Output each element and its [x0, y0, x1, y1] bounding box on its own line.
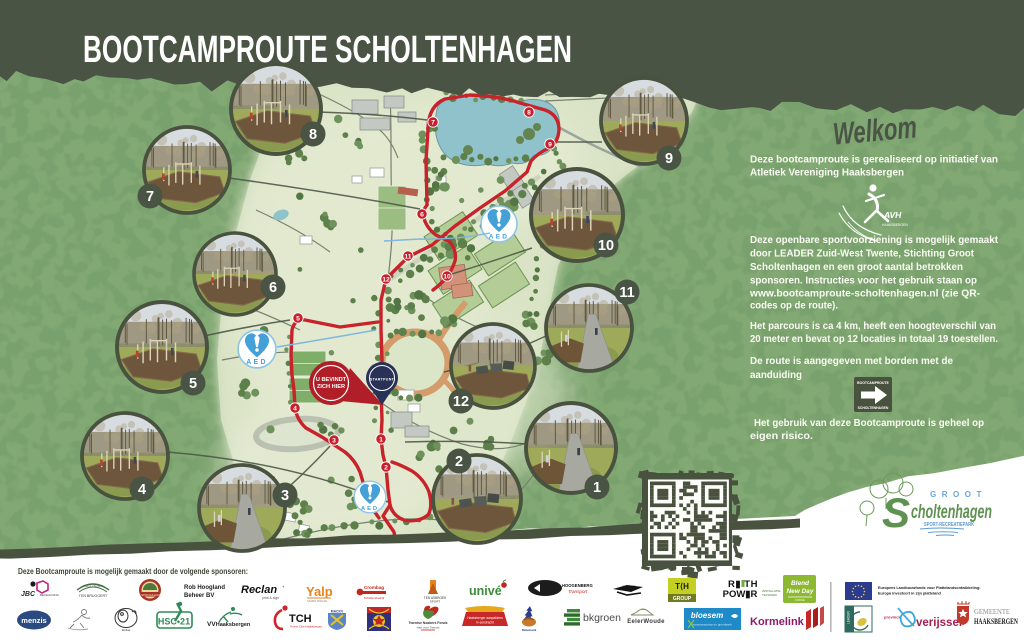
svg-text:SCHOLTENHAGEN: SCHOLTENHAGEN — [858, 406, 889, 410]
svg-text:JBC: JBC — [21, 591, 36, 598]
svg-text:SAMEN SPELEN: SAMEN SPELEN — [307, 599, 327, 603]
svg-text:De route is aangegeven met bor: De route is aangegeven met borden met de — [750, 356, 954, 367]
svg-text:Haaksbergen: Haaksbergen — [216, 622, 251, 628]
svg-text:11: 11 — [404, 253, 411, 260]
svg-text:verijssel: verijssel — [916, 617, 962, 629]
svg-text:6: 6 — [269, 280, 277, 296]
svg-text:8: 8 — [309, 127, 317, 143]
svg-text:10: 10 — [598, 238, 614, 254]
svg-text:TCH: TCH — [289, 613, 312, 625]
svg-text:Deze Bootcamproute is mogelijk: Deze Bootcamproute is mogelijk gemaakt d… — [18, 567, 248, 576]
svg-text:Hart voor Twente: Hart voor Twente — [417, 626, 440, 630]
svg-text:Hout | Bouw: Hout | Bouw — [85, 584, 101, 588]
svg-text:AED: AED — [361, 506, 379, 512]
svg-text:Schildersbedrijf: Schildersbedrijf — [364, 596, 385, 600]
svg-text:Europa investeert in zijn plat: Europa investeert in zijn platteland — [878, 592, 942, 596]
svg-text:GROUP: GROUP — [673, 596, 692, 602]
svg-text:AED: AED — [489, 234, 510, 241]
svg-text:choltenhagen: choltenhagen — [911, 502, 992, 523]
svg-text:8: 8 — [527, 109, 531, 116]
svg-text:GEMEENTE: GEMEENTE — [974, 608, 1010, 616]
svg-text:11: 11 — [619, 285, 634, 301]
svg-text:HAAKSBERGEN: HAAKSBERGEN — [882, 223, 908, 227]
svg-text:6: 6 — [420, 211, 424, 218]
svg-text:LEADER: LEADER — [847, 611, 851, 624]
svg-text:hoveniersgroep en grondwerk: hoveniersgroep en grondwerk — [692, 623, 732, 627]
svg-text:Yalp: Yalp — [306, 584, 333, 599]
svg-text:TECHNIEK: TECHNIEK — [762, 593, 777, 597]
svg-text:Wolkat: Wolkat — [122, 628, 131, 632]
svg-text:menzis: menzis — [21, 616, 46, 625]
svg-text:KOFFIE: KOFFIE — [795, 598, 805, 602]
svg-text:1: 1 — [593, 480, 601, 496]
svg-text:Welkom: Welkom — [832, 109, 919, 151]
svg-text:Rob Hoogland: Rob Hoogland — [184, 585, 225, 591]
svg-text:BOOTCAMPROUTE: BOOTCAMPROUTE — [857, 381, 889, 385]
svg-text:STARTPUNT: STARTPUNT — [370, 378, 395, 382]
svg-text:AED: AED — [246, 359, 268, 366]
svg-text:4: 4 — [293, 405, 297, 412]
svg-text:9: 9 — [665, 151, 673, 167]
svg-text:U BEVINDT: U BEVINDT — [316, 377, 347, 383]
svg-text:Transport: Transport — [568, 589, 588, 594]
svg-text:HOOGENBERG: HOOGENBERG — [562, 583, 593, 588]
svg-text:sponsoren. Instructies voor he: sponsoren. Instructies voor het gebruik … — [750, 276, 977, 287]
svg-text:S: S — [882, 489, 910, 536]
svg-text:MACKV: MACKV — [331, 609, 344, 613]
svg-text:POW▮R: POW▮R — [723, 589, 758, 600]
svg-text:Het parcours is ca 4 km, heeft: Het parcours is ca 4 km, heeft een hoogt… — [750, 321, 996, 332]
svg-text:Blend: Blend — [791, 580, 810, 587]
svg-text:SPORT: SPORT — [430, 600, 440, 604]
svg-text:BOOTCAMPROUTE SCHOLTENHAGEN: BOOTCAMPROUTE SCHOLTENHAGEN — [83, 29, 572, 71]
svg-text:Europees Landbouwfonds voor Pl: Europees Landbouwfonds voor Plattelandso… — [878, 586, 981, 590]
svg-text:aanduiding: aanduiding — [750, 370, 802, 381]
svg-text:9: 9 — [548, 141, 552, 148]
svg-text:codes op de route).: codes op de route). — [750, 301, 838, 312]
svg-text:bloesem: bloesem — [691, 611, 723, 620]
svg-text:Tennis Club Haaksbergen: Tennis Club Haaksbergen — [290, 625, 322, 629]
svg-text:HSC•21: HSC•21 — [158, 617, 190, 627]
svg-text:Atletiek Vereniging Haaksberge: Atletiek Vereniging Haaksbergen — [750, 168, 904, 179]
svg-text:TEN BRUGGERT: TEN BRUGGERT — [79, 594, 108, 598]
svg-text:Kormelink: Kormelink — [750, 616, 805, 628]
svg-text:New Day: New Day — [786, 588, 813, 595]
svg-text:20 meter en bevat op 12 locati: 20 meter en bevat op 12 locaties in tota… — [750, 334, 998, 345]
svg-text:Beheer BV: Beheer BV — [184, 593, 214, 599]
svg-text:Rabobank: Rabobank — [522, 628, 537, 632]
svg-text:eigen risico.: eigen risico. — [750, 431, 813, 442]
svg-text:Deze openbare sportvoorziening: Deze openbare sportvoorziening is mogeli… — [750, 235, 999, 246]
svg-text:Scholtenhagen en een groot aan: Scholtenhagen en een groot aantal betrok… — [750, 262, 963, 273]
svg-text:bkgroen: bkgroen — [583, 612, 621, 624]
svg-text:ZICH HIER: ZICH HIER — [317, 384, 345, 390]
svg-text:7: 7 — [431, 119, 435, 126]
svg-text:EelerWoude: EelerWoude — [627, 619, 665, 625]
svg-text:GROOT: GROOT — [930, 490, 987, 499]
svg-text:2: 2 — [384, 464, 388, 471]
svg-text:univé: univé — [469, 584, 502, 598]
svg-text:in eendracht: in eendracht — [476, 621, 494, 625]
svg-text:HAAKSBERGEN: HAAKSBERGEN — [974, 617, 1018, 626]
svg-text:3: 3 — [332, 437, 336, 444]
svg-text:AVH: AVH — [883, 210, 902, 220]
svg-text:Reclan: Reclan — [241, 584, 277, 596]
svg-text:3: 3 — [281, 488, 289, 504]
svg-text:BEVEILIGING: BEVEILIGING — [40, 593, 60, 597]
svg-text:print & sign: print & sign — [262, 596, 279, 600]
svg-text:10: 10 — [443, 273, 451, 280]
svg-text:'t SPROAKHUIS: 't SPROAKHUIS — [139, 593, 161, 597]
svg-text:makelaars: makelaars — [623, 584, 637, 588]
svg-text:www.bootcamproute-scholtenhage: www.bootcamproute-scholtenhagen.nl (zie … — [749, 289, 980, 300]
svg-text:2: 2 — [455, 454, 463, 470]
svg-text:Haaksberger aanpakkers: Haaksberger aanpakkers — [467, 616, 503, 620]
svg-text:door LEADER Zuid-West Twente,: door LEADER Zuid-West Twente, Stichting … — [750, 249, 975, 260]
svg-text:SPORT-RECREATIEPARK: SPORT-RECREATIEPARK — [924, 522, 974, 528]
svg-text:4: 4 — [138, 482, 146, 498]
svg-text:12: 12 — [453, 394, 469, 410]
svg-text:Deze bootcamproute is gerealis: Deze bootcamproute is gerealiseerd op in… — [750, 155, 998, 166]
svg-text:T⟨H: T⟨H — [675, 582, 689, 591]
svg-text:5: 5 — [296, 315, 300, 322]
svg-text:Crombag: Crombag — [364, 585, 384, 590]
svg-text:1: 1 — [379, 436, 383, 443]
svg-text:12: 12 — [382, 276, 390, 283]
svg-text:7: 7 — [146, 189, 154, 205]
svg-text:5: 5 — [189, 376, 197, 392]
svg-text:Het gebruik van deze Bootcampr: Het gebruik van deze Bootcamproute is ge… — [754, 418, 984, 429]
svg-text:Twentse Noabers Fonds: Twentse Noabers Fonds — [409, 621, 448, 625]
